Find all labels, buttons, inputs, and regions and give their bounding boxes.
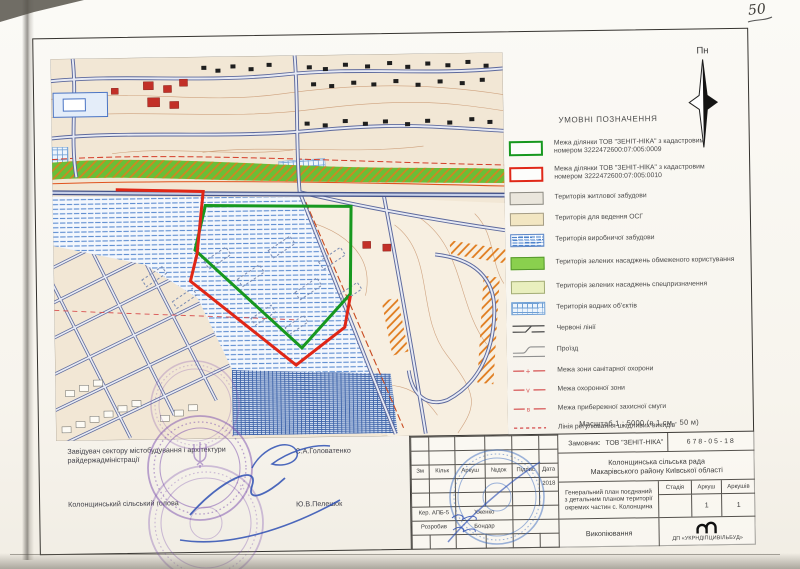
client-name: ТОВ "ЗЕНІТ-НІКА" xyxy=(606,439,664,447)
authority-cell: Колонщинська сільська рада Макарівського… xyxy=(558,451,754,483)
legend-item: + Межа зони санітарної охорони xyxy=(512,360,750,379)
signatory-title: Завідувач сектору містобудування і архіт… xyxy=(67,444,269,466)
signature-row: Завідувач сектору містобудування і архіт… xyxy=(67,442,412,466)
title-block: ЗмКількАркуш№докПідписДата 2018 Кер. АПБ… xyxy=(409,431,756,550)
organization-cell: ДП «УКРНДІПЦИВІЛЬБУД» xyxy=(658,517,755,546)
legend-swatch-green-special xyxy=(511,280,545,294)
svg-text:+: + xyxy=(526,366,531,375)
stage-table: Стадія Аркуш Аркушів 1 1 xyxy=(658,480,756,517)
signature-row: Колонщинський сільський голова Ю.В.Пелеш… xyxy=(68,495,413,513)
scan-bottom-shadow xyxy=(0,553,800,569)
legend-swatch-green-outline xyxy=(509,140,543,156)
scan-spine-shadow xyxy=(22,0,34,560)
project-title-row: Генеральний план поєднаний з детальним п… xyxy=(559,480,756,520)
organization-logo-icon xyxy=(693,521,721,534)
legend-item: v Межа охоронної зони xyxy=(512,379,750,398)
approval-signatures: Завідувач сектору містобудування і архіт… xyxy=(67,442,413,512)
legend-item: в Межа прибережної захисної смуги xyxy=(513,398,751,417)
sheet-type: Викопіювання xyxy=(559,518,658,547)
title-block-main: Замовник: ТОВ "ЗЕНІТ-НІКА" 678-05-18 Кол… xyxy=(558,432,756,548)
year-cell: 2018 xyxy=(539,477,558,491)
legend-item: Територія для ведення ОСГ xyxy=(510,208,748,228)
revision-table: ЗмКількАркуш№докПідписДата 2018 Кер. АПБ… xyxy=(410,435,560,550)
titleblock-empty-row xyxy=(412,533,559,549)
sanitary-zone-line-icon: + xyxy=(512,364,546,377)
client-label: Замовник: xyxy=(568,439,600,446)
svg-text:в: в xyxy=(527,406,531,413)
north-label: Пн xyxy=(667,45,737,57)
compass-star-icon xyxy=(683,57,724,150)
coastal-strip-line-icon: в xyxy=(513,402,547,415)
handwritten-sheet-number: 50 xyxy=(747,1,766,19)
legend-swatch-industrial-hatch xyxy=(510,233,544,247)
legend-item: Проїзд xyxy=(512,338,750,360)
legend-item: Територія виробничої забудови xyxy=(510,229,748,249)
svg-text:v: v xyxy=(526,387,530,394)
drawing-frame: УМОВНІ ПОЗНАЧЕННЯ Межа ділянки ТОВ "ЗЕНІ… xyxy=(32,28,756,556)
scanned-sheet: 50 xyxy=(0,0,800,569)
legend-swatch-green-limited xyxy=(510,256,544,270)
legend-item: Червоні лінії xyxy=(511,318,749,338)
red-lines-icon xyxy=(511,321,545,338)
bottom-row: Викопіювання ДП «УКРНДІПЦИВІЛЬБУД» xyxy=(559,517,755,548)
legend-item: Межа ділянки ТОВ "ЗЕНІТ-НІКА" з кадастро… xyxy=(509,161,747,185)
legend-swatch-osg xyxy=(510,212,544,226)
signatory-title: Колонщинський сільський голова xyxy=(68,497,270,509)
organization-name: ДП «УКРНДІПЦИВІЛЬБУД» xyxy=(672,535,743,542)
legend-item: Територія житлової забудови xyxy=(510,187,748,207)
scan-corner-shadow xyxy=(0,0,84,22)
legend-panel: УМОВНІ ПОЗНАЧЕННЯ Межа ділянки ТОВ "ЗЕНІ… xyxy=(508,113,751,439)
legend-item: Територія водних об’єктів xyxy=(511,297,749,317)
site-plan-map xyxy=(51,52,509,441)
signatory-name: С.А.Головатенко xyxy=(295,443,351,456)
north-arrow: Пн xyxy=(667,45,739,155)
driveway-icon xyxy=(512,341,546,360)
legend-swatch-residential xyxy=(510,191,544,205)
legend-swatch-water-grid xyxy=(511,301,545,315)
legend-item: Територія зелених насаджень обмеженого к… xyxy=(510,250,748,274)
compound-outline xyxy=(53,92,108,117)
project-title: Генеральний план поєднаний з детальним п… xyxy=(559,481,659,518)
harmful-emissions-line-icon xyxy=(513,421,547,434)
legend-swatch-red-outline xyxy=(509,166,543,182)
signatory-name: Ю.В.Пелешок xyxy=(296,496,342,509)
protection-zone-line-icon: v xyxy=(512,383,546,396)
project-code: 678-05-18 xyxy=(667,432,754,451)
legend-item: Територія зелених насаджень спецпризначе… xyxy=(511,276,749,296)
